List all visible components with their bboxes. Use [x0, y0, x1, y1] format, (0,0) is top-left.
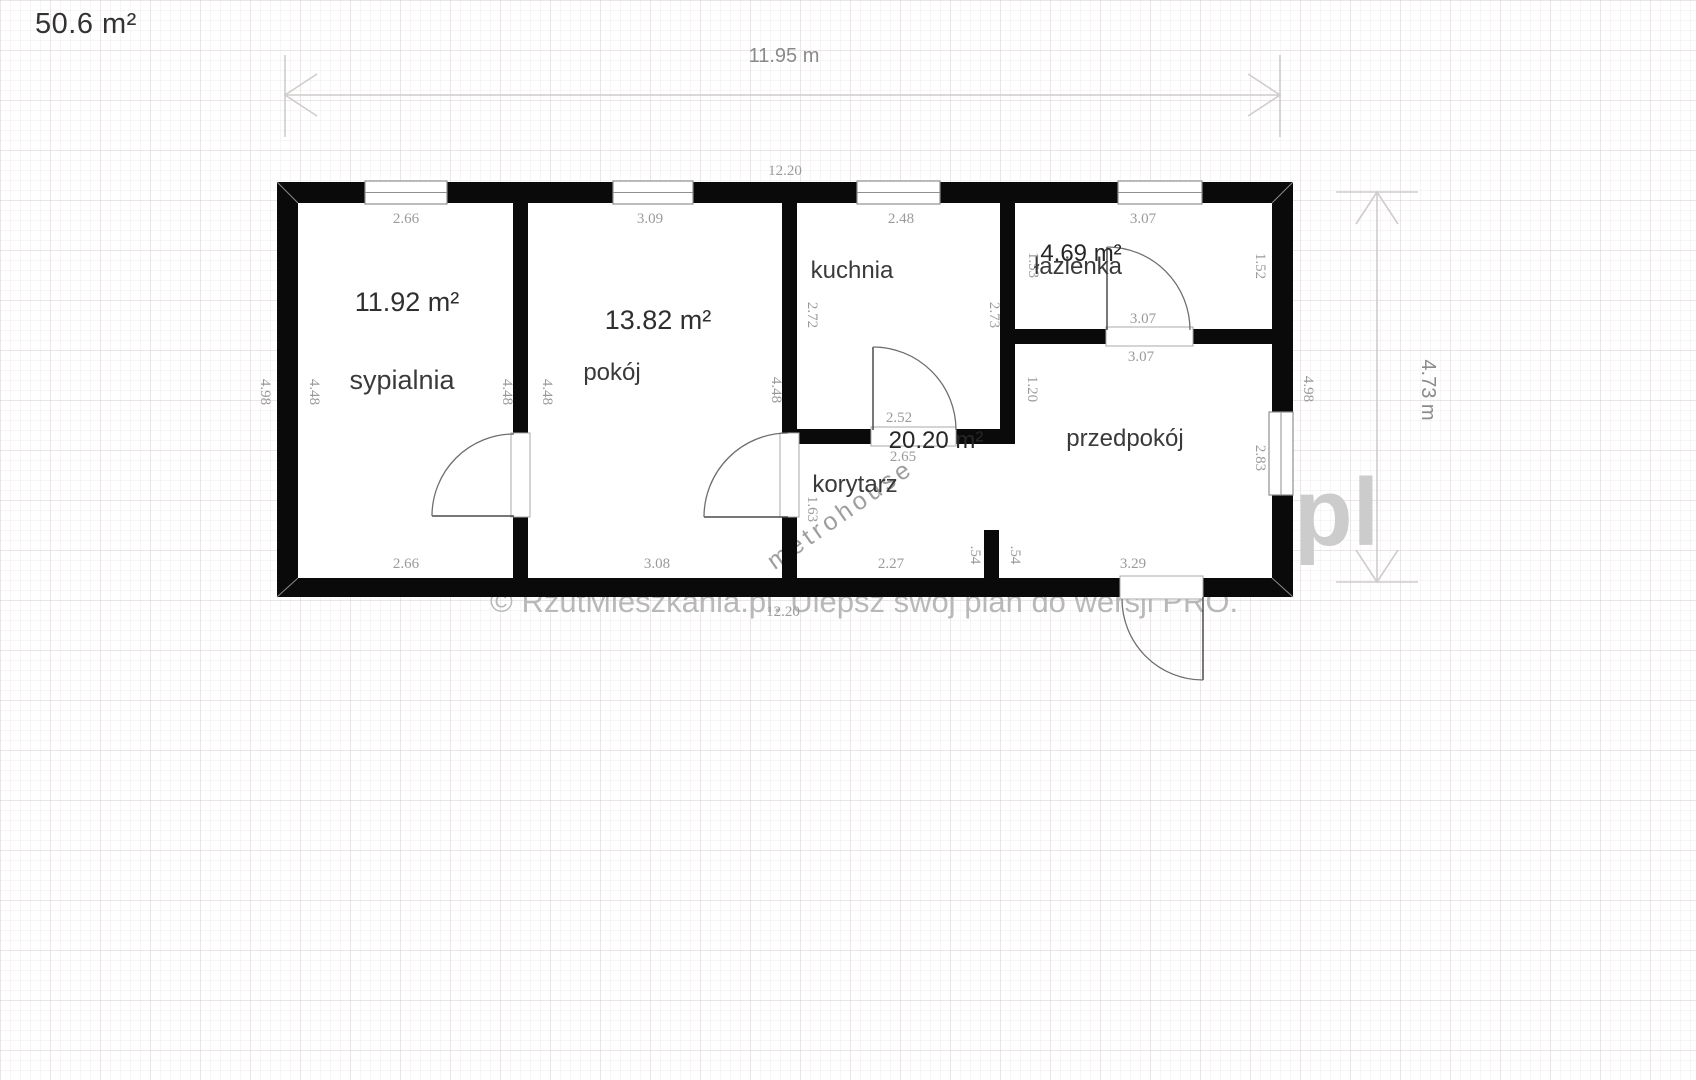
dim-kuchnia-top: 2.48	[888, 211, 914, 227]
window-kuchnia	[857, 181, 940, 204]
top-dimension-line	[285, 55, 1280, 137]
dim-overall-height: 4.73 m	[1417, 359, 1439, 420]
dim-korytarz-top: 2.52	[886, 410, 912, 426]
area-label-sypialnia: 11.92 m²	[355, 287, 460, 317]
door-entry	[1120, 576, 1203, 680]
room-label-przedpokoj: przedpokój	[1066, 425, 1183, 452]
room-label-sypialnia: sypialnia	[349, 365, 455, 395]
dim-sypialnia-right: 4.48	[499, 379, 515, 405]
room-label-pokoj: pokój	[583, 359, 640, 386]
wall-right	[1272, 182, 1293, 597]
dim-wall-stub-120: 1.20	[1024, 376, 1040, 402]
dim-lazienka-top: 3.07	[1130, 211, 1157, 227]
dim-korytarz-side: 1.63	[804, 496, 820, 522]
dim-sypialnia-top: 2.66	[393, 211, 420, 227]
floor-plan-page: { "header": { "total_area": "50.6 m²" },…	[0, 0, 1696, 1080]
window-przedpokoj	[1269, 412, 1293, 495]
room-label-lazienka: łazienka	[1034, 253, 1123, 280]
dim-outer-left: 4.98	[257, 379, 273, 405]
wall-lazienka-bottom-right	[1193, 329, 1272, 344]
window-lazienka	[1118, 181, 1202, 204]
wall-stub-entry	[984, 530, 999, 578]
dim-przedpokoj-window: 2.83	[1252, 445, 1268, 471]
dim-przedpokoj-bottom: 3.29	[1120, 556, 1146, 572]
dim-overall-width: 11.95 m	[749, 45, 820, 67]
wall-sypialnia-pokoj-lower	[513, 517, 528, 578]
dim-stub-right: .54	[1007, 546, 1023, 565]
dim-lazienka-right: 1.52	[1252, 253, 1268, 279]
area-label-korytarz: 20.20 m²	[889, 427, 984, 454]
dim-korytarz-bottom: 2.27	[878, 556, 905, 572]
room-label-korytarz: korytarz	[812, 471, 897, 498]
watermark-pl: pl	[1294, 459, 1379, 566]
dim-inner-width-top: 12.20	[768, 163, 802, 179]
wall-kuchnia-bottom-left	[797, 429, 873, 444]
wall-lazienka-bottom-left	[1015, 329, 1108, 344]
dim-outer-right: 4.98	[1300, 376, 1316, 402]
floor-plan-canvas: © RzutMieszkania.pl. Ulepsz swój plan do…	[0, 0, 1696, 1080]
dim-pokoj-left: 4.48	[539, 379, 555, 405]
dim-pokoj-bottom: 3.08	[644, 556, 670, 572]
window-pokoj	[613, 181, 693, 204]
dim-przedpokoj-top: 3.07	[1128, 349, 1155, 365]
area-label-pokoj: 13.82 m²	[605, 305, 712, 335]
dim-pokoj-top: 3.09	[637, 211, 663, 227]
dim-kuchnia-right: 2.73	[986, 302, 1002, 328]
wall-pokoj-korytarz-lower	[782, 517, 797, 578]
dim-pokoj-right: 4.48	[768, 377, 784, 403]
dim-inner-width-bottom: 12.20	[766, 604, 800, 620]
dim-sypialnia-left: 4.48	[306, 379, 322, 405]
dim-sypialnia-bottom: 2.66	[393, 556, 420, 572]
wall-left	[277, 182, 298, 597]
dim-stub-left: .54	[967, 546, 983, 565]
window-sypialnia	[365, 181, 447, 204]
dim-lazienka-bottom: 3.07	[1130, 311, 1157, 327]
room-label-kuchnia: kuchnia	[811, 257, 894, 284]
dim-kuchnia-left: 2.72	[804, 302, 820, 328]
